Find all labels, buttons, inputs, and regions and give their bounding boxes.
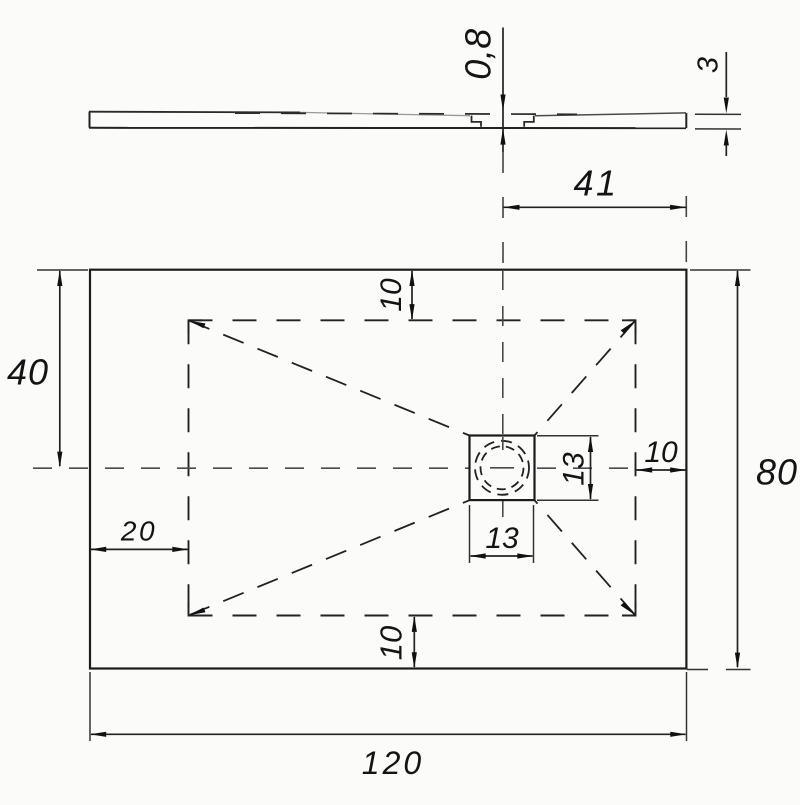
svg-text:41: 41 (573, 162, 618, 203)
svg-text:10: 10 (375, 278, 408, 312)
svg-text:120: 120 (362, 745, 424, 781)
svg-text:80: 80 (756, 451, 798, 492)
svg-text:10: 10 (373, 626, 408, 660)
svg-text:40: 40 (7, 351, 49, 392)
svg-text:0,8: 0,8 (457, 28, 498, 80)
svg-text:3: 3 (693, 57, 725, 73)
svg-text:13: 13 (485, 522, 519, 555)
svg-text:20: 20 (120, 515, 157, 546)
svg-text:10: 10 (644, 436, 678, 469)
svg-text:13: 13 (558, 452, 591, 486)
